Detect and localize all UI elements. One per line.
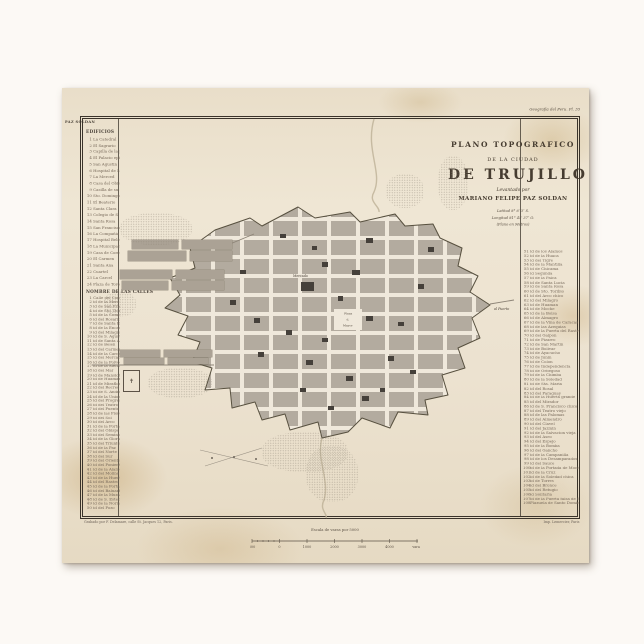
building-mark (388, 356, 394, 361)
svg-text:2000: 2000 (330, 545, 339, 549)
suburb-block (164, 350, 212, 357)
suburb-block (190, 251, 232, 261)
scale-label: Escala de varas por 5000 (282, 528, 387, 532)
title-line: PLANO TOPOGRAFICO (448, 140, 578, 149)
svg-text:0: 0 (278, 545, 280, 549)
building-mark (398, 322, 404, 326)
building-mark (254, 318, 260, 323)
plaza-label: d. (347, 318, 350, 321)
poster: PAZ SOLDAN Geografia del Peru. Pl. 35 PL… (0, 0, 644, 644)
printer-imprint: Imp. Lemercier, Paris (543, 520, 579, 524)
legend-buildings-header: EDIFICIOS (86, 129, 120, 134)
suburb-block (176, 270, 224, 279)
suburb-block (122, 281, 168, 290)
field-patch (306, 446, 358, 502)
mercado-label: Mercado (293, 274, 308, 278)
field-patch (148, 368, 212, 398)
building-mark (428, 247, 434, 252)
svg-text:varas: varas (411, 545, 420, 549)
cemetery-enclosure: ✝ (123, 370, 140, 392)
building-mark (352, 270, 360, 275)
field-patch (438, 156, 468, 210)
suburb-block (120, 270, 172, 279)
building-mark (328, 406, 334, 410)
building-mark (418, 284, 424, 289)
author-name: MARIANO FELIPE PAZ SOLDAN (448, 196, 578, 202)
legend-row: 24Plaza de Toros (86, 282, 120, 288)
suburb-block (172, 281, 224, 290)
meters-note: (Plano en Metros) (474, 221, 552, 228)
legend-streets-list: 1Calle del Comercio2id de la Merced3id d… (86, 296, 120, 510)
building-mark (301, 282, 314, 291)
engraver-imprint: Grabado por F. Delamare, calle St. Jacqu… (84, 520, 173, 524)
suburb-block (182, 240, 232, 249)
scale-bar-ruler: 50001000200030004000varas (250, 538, 420, 550)
building-mark (230, 300, 236, 305)
title-line: DE LA CIUDAD (448, 157, 578, 163)
building-mark (322, 338, 328, 342)
building-mark (280, 234, 286, 238)
scale-bar: Escala de varas por 5000 500010002000300… (250, 528, 420, 554)
plaza-label: Mayor (343, 324, 353, 327)
legend-left-column: EDIFICIOS 1La Catedral2El Sagrario3Capil… (86, 128, 120, 511)
building-mark (410, 370, 416, 374)
legend-row: 108Plazuela de Santo Domingo (523, 502, 579, 506)
plaza-mayor: Plaza d. Mayor (334, 309, 362, 330)
svg-text:1000: 1000 (303, 545, 312, 549)
al-puerto-label: al Puerto (494, 307, 509, 311)
building-mark (240, 270, 246, 274)
field-patch (386, 174, 424, 208)
svg-text:3000: 3000 (358, 545, 367, 549)
field-patch (120, 213, 192, 245)
building-mark (312, 246, 317, 250)
building-mark (338, 296, 343, 301)
suburb-block (128, 251, 186, 261)
building-mark (366, 238, 373, 243)
svg-text:500: 500 (250, 545, 255, 549)
building-mark (258, 352, 264, 357)
suburb-block (124, 358, 164, 364)
plaza-label: Plaza (344, 312, 352, 315)
building-mark (346, 376, 353, 381)
legend-row: 50id del Pozo (86, 506, 120, 510)
coordinates-note: Latitud 8° 6′ 3″ S. Longitud 81° 45′ 37″… (474, 208, 552, 228)
legend-streets-list-continued: 51id de los Alamos52id de la Huaca53id d… (523, 250, 579, 506)
building-mark (286, 330, 292, 335)
building-mark (380, 388, 385, 392)
building-mark (366, 316, 373, 321)
legend-buildings-list: 1La Catedral2El Sagrario3Capilla de la p… (86, 136, 120, 287)
suburb-block (168, 358, 208, 364)
legend-right-column: 51id de los Alamos52id de la Huaca53id d… (523, 250, 579, 506)
field-patch (104, 291, 136, 317)
building-mark (300, 388, 306, 392)
map-sheet: PAZ SOLDAN Geografia del Peru. Pl. 35 PL… (62, 88, 589, 563)
building-mark (306, 360, 313, 365)
cross-icon: ✝ (129, 378, 134, 385)
building-mark (322, 262, 328, 267)
atlas-plate-label: Geografia del Peru. Pl. 35 (529, 107, 580, 112)
building-mark (362, 396, 369, 401)
suburb-block (120, 350, 160, 357)
svg-text:4000: 4000 (385, 545, 394, 549)
